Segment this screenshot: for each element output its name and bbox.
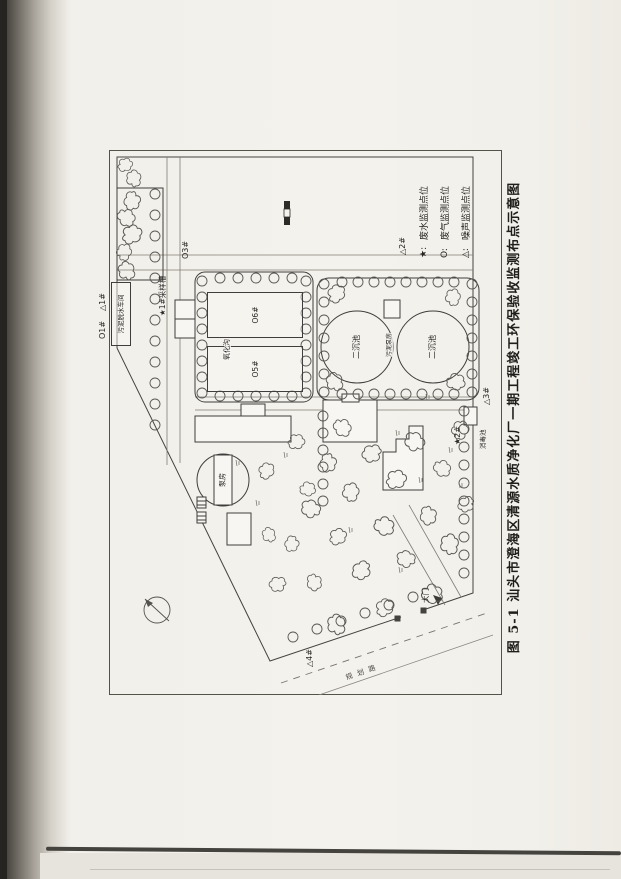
- legend-item-exhaust-gas: O: 废气监测点位: [434, 186, 455, 258]
- legend-noise-label: 噪声监测点位: [459, 186, 472, 240]
- marker-n1: △1#: [99, 293, 107, 311]
- legend-wastewater-label: 废水监测点位: [417, 186, 430, 240]
- book-spine-edge: [0, 0, 7, 879]
- gas-circle-icon: O:: [440, 240, 450, 258]
- oxidation-ditch-label: 氧化沟: [224, 338, 231, 361]
- gate-label: 大门: [422, 588, 430, 603]
- sludge-dewatering-building: 污泥脱水车间: [111, 282, 131, 346]
- legend-item-wastewater: ★: 废水监测点位: [413, 186, 434, 258]
- scale-bar: [284, 201, 290, 225]
- basin-o5-label: O5#: [251, 361, 260, 378]
- marker-w1: ★1#采样槽: [159, 276, 167, 316]
- north-arrow-icon: [144, 597, 170, 623]
- page-edge-line-faint: [90, 869, 610, 870]
- legend-gas-label: 废气监测点位: [438, 186, 451, 240]
- clarifier-2-label: 二沉池: [429, 335, 437, 359]
- legend: ★: 废水监测点位 O: 废气监测点位 △: 噪声监测点位: [413, 186, 476, 258]
- marker-n3: △3#: [483, 387, 491, 405]
- wastewater-star-icon: ★:: [419, 240, 429, 258]
- marker-o3: O3#: [182, 241, 190, 259]
- oxidation-basin-o6: O6#: [207, 292, 303, 338]
- pump-house-label: 泵房: [220, 473, 227, 487]
- legend-item-noise: △: 噪声监测点位: [455, 186, 476, 258]
- sludge-pump-label: 污泥泵房: [387, 333, 393, 357]
- marker-o1: O1#: [99, 321, 107, 339]
- disinfection-tank-label: 消毒池: [480, 430, 487, 450]
- figure-caption: 图 5-1 汕头市澄海区清源水质净化厂一期工程竣工环保验收监测布点示意图: [503, 140, 522, 695]
- page-bottom-area: [40, 853, 621, 879]
- book-spine-shadow: [0, 0, 70, 879]
- noise-triangle-icon: △:: [461, 240, 471, 258]
- marker-n2: △2#: [399, 237, 407, 255]
- oxidation-basin-o5: O5#: [207, 346, 303, 392]
- site-plan: O5# O6# 污泥脱水车间 氧化沟 二沉池 二沉池 污泥泵房 泵房 消毒池 大…: [95, 140, 505, 695]
- marker-w2: ★2#: [454, 426, 462, 445]
- marker-n4: △4#: [306, 649, 314, 667]
- grit-screens: [197, 497, 206, 523]
- scanned-page: O5# O6# 污泥脱水车间 氧化沟 二沉池 二沉池 污泥泵房 泵房 消毒池 大…: [0, 0, 621, 879]
- basin-o6-label: O6#: [251, 307, 260, 324]
- figure-5-1: O5# O6# 污泥脱水车间 氧化沟 二沉池 二沉池 污泥泵房 泵房 消毒池 大…: [95, 140, 527, 695]
- clarifier-1-label: 二沉池: [353, 335, 361, 359]
